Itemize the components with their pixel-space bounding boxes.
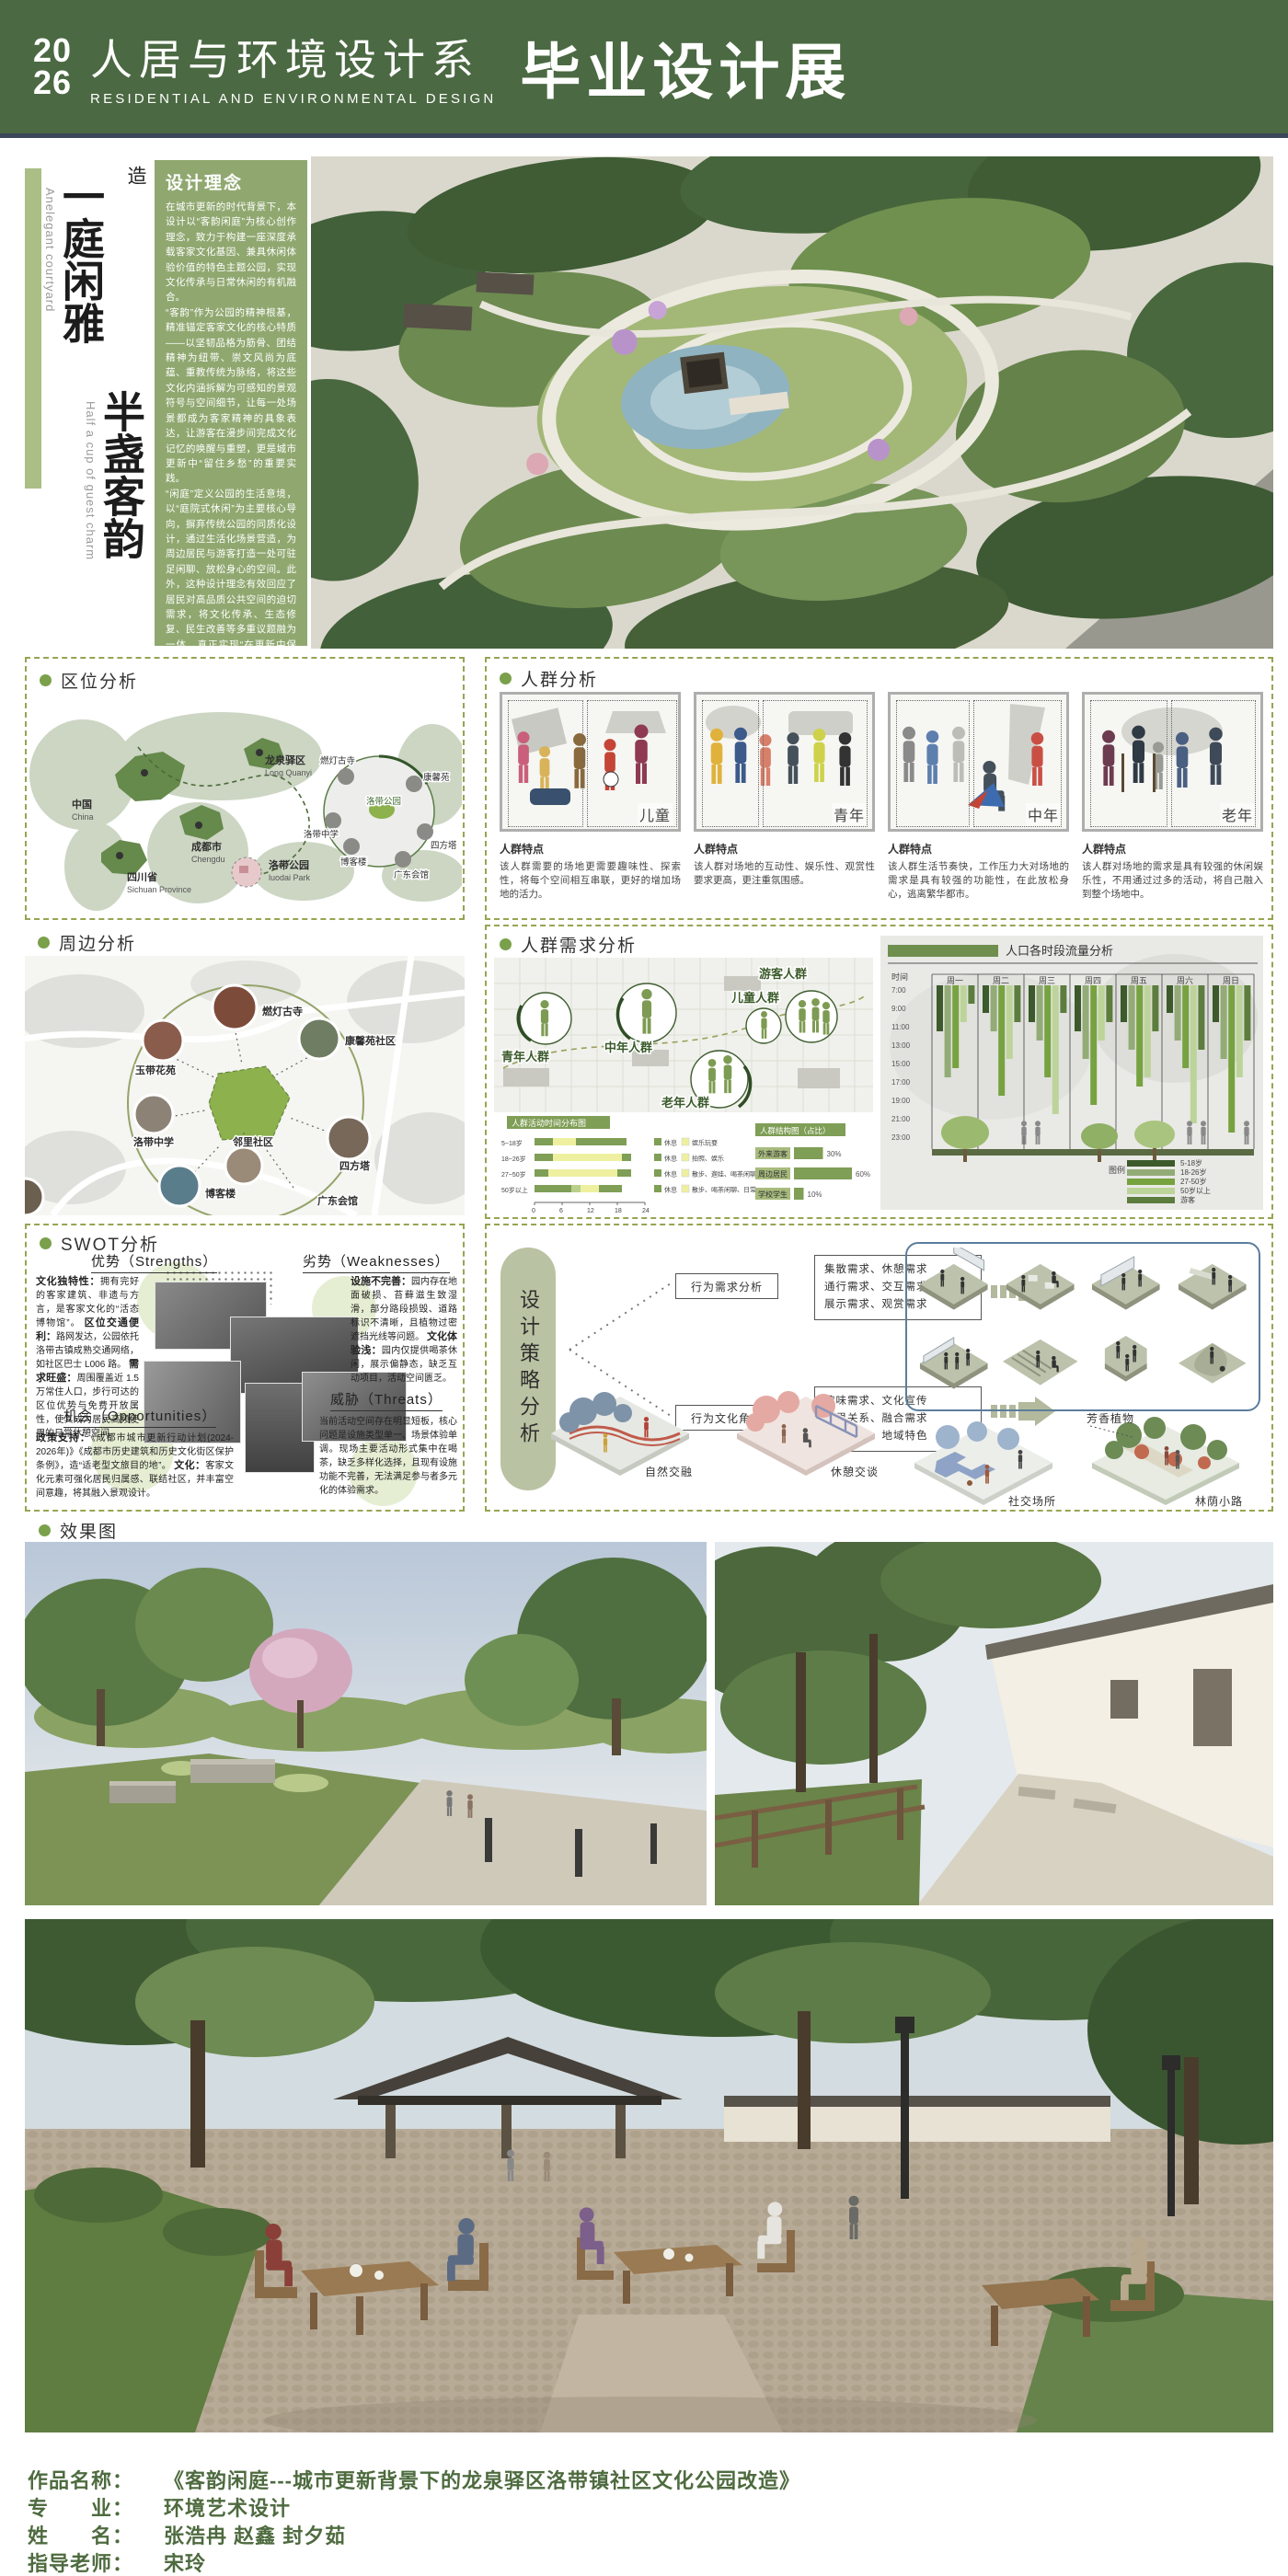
- iso-cell: [1083, 1248, 1168, 1327]
- population-flow-chart: 人口各时段流量分析时间7:009:0011:0013:0015:0017:001…: [880, 936, 1263, 1210]
- marker-china-cn: 中国: [72, 798, 92, 811]
- poi-yudai-garden: 玉带花苑: [135, 1064, 176, 1076]
- location-map: 中国 四川省 成都市 龙泉驿区 洛带公园 China Sichuan Provi…: [28, 692, 462, 918]
- inset-bokelou: 博客楼: [340, 857, 367, 868]
- trait-text: 该人群对场地的需求是具有较强的休闲娱乐性，不用通过过多的活动，将自己融入到整个场…: [1082, 860, 1263, 902]
- svg-text:周三: 周三: [1039, 976, 1055, 985]
- concept-title: 设计理念: [166, 169, 296, 194]
- concept-paragraph-2: “客韵”作为公园的精神根基，精准锚定客家文化的核心特质——以坚韧品格为筋骨、团结…: [166, 305, 296, 487]
- scene-label: 休憩交谈: [831, 1465, 879, 1478]
- svg-text:15:00: 15:00: [891, 1060, 911, 1068]
- crowd-structure-chart: 人群结构图（占比）外来游客30%周边居民60%学校学生10%: [755, 1121, 875, 1213]
- footer-key: 作品名称：: [28, 2467, 164, 2495]
- footer-row-title: 作品名称： 《客韵闲庭---城市更新背景下的龙泉驿区洛带镇社区文化公园改造》: [28, 2467, 800, 2495]
- svg-text:18: 18: [615, 1208, 622, 1214]
- trait-title: 人群特点: [500, 841, 681, 857]
- group-label-youth: 青年人群: [501, 1050, 549, 1064]
- surrounding-label: 周边分析: [59, 930, 136, 955]
- section-dot-icon: [500, 673, 512, 684]
- surrounding-header: 周边分析: [38, 930, 136, 955]
- needs-analysis-box: 人群需求分析: [485, 925, 1273, 1219]
- crowd-group-name: 青年: [832, 803, 867, 825]
- footer-value: 环境艺术设计: [164, 2495, 291, 2523]
- lead: 文化：: [174, 1460, 205, 1471]
- crowd-group-name: 儿童: [638, 803, 673, 825]
- group-label-tourists: 游客人群: [759, 967, 807, 981]
- year-top: 20: [33, 35, 72, 66]
- svg-text:人群活动时间分布图: 人群活动时间分布图: [512, 1118, 586, 1128]
- footer-key: 专 业：: [28, 2495, 164, 2523]
- title-english-2: Half a cup of guest charm: [84, 401, 98, 560]
- iso-cell: [1169, 1327, 1255, 1406]
- renders-header: 效果图: [39, 1518, 118, 1543]
- svg-text:时间: 时间: [891, 972, 908, 982]
- year-block: 20 26: [33, 35, 72, 98]
- trait-text: 该人群对场地的互动性、娱乐性、观赏性要求更高，更注重氛围感。: [694, 860, 875, 888]
- svg-text:人群结构图（占比）: 人群结构图（占比）: [760, 1126, 831, 1135]
- svg-text:休息: 休息: [664, 1186, 677, 1194]
- renders-label: 效果图: [60, 1518, 118, 1543]
- svg-text:10%: 10%: [808, 1190, 822, 1199]
- svg-text:9:00: 9:00: [891, 1005, 906, 1013]
- department-block: 人居与环境设计系 RESIDENTIAL AND ENVIRONMENTAL D…: [90, 27, 496, 107]
- iso-cell: [1169, 1248, 1255, 1327]
- opportunities-items: 政策支持：《成都市城市更新行动计划(2024-2026年)》《成都市历史建筑和历…: [36, 1432, 234, 1501]
- iso-cell: [1083, 1327, 1168, 1406]
- department-subtitle: RESIDENTIAL AND ENVIRONMENTAL DESIGN: [90, 91, 496, 107]
- title-english-1: Anelegant courtyard: [43, 188, 57, 312]
- footer-key: 姓 名：: [28, 2523, 164, 2550]
- scene-label: 自然交融: [645, 1465, 693, 1478]
- footer-row-major: 专 业： 环境艺术设计: [28, 2495, 800, 2523]
- crowd-group-name: 中年: [1026, 803, 1061, 825]
- inset-kangxinyuan: 康馨苑: [423, 772, 450, 783]
- aerial-scene: [311, 156, 1273, 649]
- concept-paragraph-1: 在城市更新的时代背景下，本设计以“客韵闲庭”为核心创作理念，致力于构建一座深度承…: [166, 200, 296, 305]
- text: 当前活动空间存在明显短板，核心问题是设施类型单一、场景体验单调。现场主要活动形式…: [319, 1417, 457, 1496]
- behaviour-diagram-grid: [905, 1242, 1260, 1411]
- render-alley-scene: [715, 1542, 1273, 1905]
- section-dot-icon: [500, 938, 512, 950]
- footer-value: 《客韵闲庭---城市更新背景下的龙泉驿区洛带镇社区文化公园改造》: [164, 2467, 800, 2495]
- svg-text:27-50岁: 27-50岁: [1180, 1177, 1206, 1186]
- crowd-panel-middleaged: 中年: [888, 692, 1069, 832]
- svg-text:6: 6: [559, 1208, 563, 1214]
- scene-shaded-path: 芳香植物 林荫小路: [1083, 1409, 1248, 1511]
- svg-text:13:00: 13:00: [891, 1041, 911, 1050]
- crowd-trait-children: 人群特点 该人群需要的场地更需要趣味性、探索性，将每个空间相互串联，更好的增加场…: [500, 841, 681, 902]
- marker-longquanyi-cn: 龙泉驿区: [264, 753, 305, 766]
- concept-paragraph-3: “闲庭”定义公园的生活意境，以“庭院式休闲”为主要核心导向，摒弃传统公园的同质化…: [166, 487, 296, 683]
- weaknesses-title: 劣势（Weaknesses）: [303, 1251, 450, 1273]
- render-tea-garden: [25, 1919, 1273, 2432]
- scene-nature: 自然交融: [542, 1380, 698, 1481]
- crowd-trait-middleaged: 人群特点 该人群生活节奏快，工作压力大对场地的需求是具有较强的功能性，在此放松身…: [888, 841, 1069, 902]
- marker-chengdu-en: Chengdu: [191, 855, 225, 864]
- surrounding-map: 燃灯古寺 玉带花苑 康馨苑社区 洛带中学 邻里社区 四方塔 博客楼 广东会馆: [25, 956, 465, 1215]
- crowd-trait-elderly: 人群特点 该人群对场地的需求是具有较强的休闲娱乐性，不用通过过多的活动，将自己融…: [1082, 841, 1263, 902]
- exhibition-title: 毕业设计展: [520, 23, 851, 111]
- marker-luodaipark-en: luodai Park: [269, 873, 311, 882]
- render-tea-garden-scene: [25, 1919, 1273, 2432]
- inset-luodai-park: 洛带公园: [366, 796, 401, 807]
- svg-text:人口各时段流量分析: 人口各时段流量分析: [1006, 944, 1113, 958]
- footer-row-advisor: 指导老师： 宋玲: [28, 2550, 800, 2576]
- marker-luodaipark-cn: 洛带公园: [269, 858, 309, 871]
- crowd-label: 人群分析: [521, 666, 598, 691]
- svg-text:60%: 60%: [856, 1170, 870, 1179]
- footer-value: 张浩冉 赵鑫 封夕茹: [164, 2523, 346, 2550]
- inset-luodai-school: 洛带中学: [304, 829, 339, 840]
- crowd-group-name: 老年: [1220, 803, 1255, 825]
- iso-cell: [911, 1327, 996, 1406]
- strategy-analysis-box: 设计策略分析 行为需求分析 集散需求、休憩需求 通行需求、交互需求 展示需求、观…: [485, 1224, 1273, 1512]
- svg-text:11:00: 11:00: [891, 1023, 910, 1031]
- strengths-title: 优势（Strengths）: [91, 1251, 217, 1273]
- svg-text:21:00: 21:00: [891, 1115, 911, 1123]
- group-label-children: 儿童人群: [730, 991, 779, 1005]
- crowd-trait-youth: 人群特点 该人群对场地的互动性、娱乐性、观赏性要求更高，更注重氛围感。: [694, 841, 875, 888]
- svg-text:游客: 游客: [1180, 1195, 1195, 1204]
- svg-text:休息: 休息: [664, 1155, 677, 1163]
- opportunities-title: 机会（Opportunities）: [63, 1406, 216, 1428]
- marker-sichuan-cn: 四川省: [127, 870, 157, 883]
- svg-text:19:00: 19:00: [891, 1097, 911, 1105]
- svg-text:5-18岁: 5-18岁: [1180, 1158, 1202, 1167]
- group-label-middleaged: 中年人群: [604, 1041, 652, 1054]
- hero-section: Anelegant courtyard 一庭闲雅 Half a cup of g…: [0, 156, 1288, 649]
- svg-text:图例: 图例: [1109, 1165, 1125, 1175]
- group-label-elderly: 老年人群: [661, 1096, 709, 1110]
- poi-randeng-temple: 燃灯古寺: [261, 1005, 303, 1018]
- footer-row-names: 姓 名： 张浩冉 赵鑫 封夕茹: [28, 2523, 800, 2550]
- activity-time-chart: 人群活动时间分布图5~18岁休息娱乐玩耍18~26岁休息拍照、娱乐27~50岁休…: [501, 1116, 759, 1215]
- svg-text:5~18岁: 5~18岁: [501, 1139, 523, 1147]
- crowd-analysis-box: 人群分析: [485, 657, 1273, 920]
- svg-text:周边居民: 周边居民: [758, 1169, 788, 1179]
- swot-analysis-box: SWOT分析 优势（Strengths） 文化独特性：拥有完好的客家建筑、非遗与…: [25, 1224, 465, 1512]
- svg-text:散步、遛娃、喝茶闲聊: 散步、遛娃、喝茶闲聊: [692, 1170, 756, 1179]
- needs-crowd-map: 青年人群 中年人群 儿童人群 游客人群 老年人群: [494, 958, 873, 1112]
- year-bottom: 26: [33, 67, 72, 98]
- poi-neighborhood-community: 邻里社区: [232, 1135, 273, 1148]
- poi-guangdong-hall: 广东会馆: [317, 1194, 358, 1207]
- svg-text:周日: 周日: [1223, 976, 1239, 985]
- svg-text:周五: 周五: [1131, 976, 1147, 985]
- svg-text:50岁以上: 50岁以上: [1180, 1186, 1211, 1195]
- svg-text:学校学生: 学校学生: [758, 1190, 788, 1199]
- main-title-part1: 一庭闲雅: [60, 175, 102, 344]
- section-dot-icon: [40, 674, 52, 686]
- crowd-panel-youth: 青年: [694, 692, 875, 832]
- scene-rest-chat: 休憩交谈: [728, 1380, 884, 1481]
- svg-text:12: 12: [587, 1208, 594, 1214]
- location-label: 区位分析: [61, 668, 138, 693]
- svg-text:23:00: 23:00: [891, 1133, 911, 1142]
- crowd-panel-children: 儿童: [500, 692, 681, 832]
- section-dot-icon: [39, 1524, 51, 1536]
- svg-text:50岁以上: 50岁以上: [501, 1186, 528, 1194]
- footer-key: 指导老师：: [28, 2550, 164, 2576]
- svg-text:7:00: 7:00: [891, 986, 906, 995]
- svg-text:散步、喝茶闲聊、日常: 散步、喝茶闲聊、日常: [692, 1186, 756, 1194]
- trait-title: 人群特点: [694, 841, 875, 857]
- svg-text:周六: 周六: [1177, 975, 1193, 985]
- svg-text:休息: 休息: [664, 1170, 677, 1179]
- marker-chengdu-cn: 成都市: [191, 840, 222, 853]
- trait-title: 人群特点: [1082, 841, 1263, 857]
- scene-annotation: 芳香植物: [1087, 1411, 1134, 1425]
- svg-text:30%: 30%: [827, 1150, 842, 1158]
- threats-title: 威胁（Threats）: [330, 1389, 443, 1411]
- lead: 文化独特性：: [36, 1276, 100, 1287]
- iso-cell: [997, 1327, 1083, 1406]
- location-analysis-box: 区位分析 中国 四川省 成都市 龙泉驿区 洛: [25, 657, 465, 920]
- marker-china-en: China: [72, 812, 94, 822]
- svg-text:17:00: 17:00: [891, 1078, 911, 1087]
- render-park-view: [25, 1542, 707, 1905]
- poi-sifang-tower: 四方塔: [339, 1159, 371, 1172]
- poi-luodai-school: 洛带中学: [133, 1135, 174, 1148]
- iso-cell: [911, 1248, 996, 1327]
- trait-text: 该人群需要的场地更需要趣味性、探索性，将每个空间相互串联，更好的增加场地的活力。: [500, 860, 681, 902]
- trait-title: 人群特点: [888, 841, 1069, 857]
- svg-text:周一: 周一: [947, 976, 963, 985]
- scene-label: 林荫小路: [1195, 1494, 1243, 1508]
- footer-value: 宋玲: [164, 2550, 206, 2576]
- svg-text:18~26岁: 18~26岁: [501, 1155, 526, 1163]
- inset-sifang-tower: 四方塔: [431, 840, 457, 851]
- svg-text:休息: 休息: [664, 1139, 677, 1147]
- surrounding-analysis-box: 周边分析: [25, 925, 465, 1219]
- svg-text:拍照、娱乐: 拍照、娱乐: [692, 1155, 724, 1163]
- section-dot-icon: [40, 1237, 52, 1249]
- iso-cell: [997, 1248, 1083, 1327]
- scene-social: 社交场所: [905, 1409, 1062, 1511]
- department-title: 人居与环境设计系: [90, 27, 496, 87]
- needs-header: 人群需求分析: [500, 932, 637, 957]
- poi-bokelou: 博客楼: [205, 1187, 236, 1200]
- header-rule: [0, 133, 1288, 138]
- svg-text:周四: 周四: [1085, 976, 1101, 985]
- crowd-header: 人群分析: [500, 666, 598, 691]
- svg-text:18-26岁: 18-26岁: [1180, 1167, 1206, 1177]
- strategy-pill-label: 设计策略分析: [513, 1289, 543, 1449]
- svg-text:27~50岁: 27~50岁: [501, 1170, 526, 1179]
- svg-text:娱乐玩耍: 娱乐玩耍: [692, 1139, 718, 1147]
- poi-kangxinyuan-community: 康馨苑社区: [345, 1034, 396, 1047]
- lead: 政策支持：: [36, 1432, 91, 1443]
- marker-longquanyi-en: Long Quanyi: [265, 768, 312, 777]
- inset-randeng-temple: 燃灯古寺: [320, 755, 356, 766]
- lead: 设施不完善：: [351, 1276, 411, 1287]
- svg-text:0: 0: [532, 1208, 535, 1214]
- section-dot-icon: [38, 937, 50, 949]
- svg-text:周二: 周二: [993, 976, 1009, 985]
- location-header: 区位分析: [40, 668, 138, 693]
- scene-label: 社交场所: [1008, 1494, 1056, 1508]
- concept-panel: 设计理念 在城市更新的时代背景下，本设计以“客韵闲庭”为核心创作理念，致力于构建…: [155, 160, 307, 646]
- needs-label: 人群需求分析: [521, 932, 637, 957]
- poster: 20 26 人居与环境设计系 RESIDENTIAL AND ENVIRONME…: [0, 0, 1288, 2576]
- render-park-scene: [25, 1542, 707, 1905]
- header-band: 20 26 人居与环境设计系 RESIDENTIAL AND ENVIRONME…: [0, 0, 1288, 133]
- render-alley-view: [715, 1542, 1273, 1905]
- svg-text:24: 24: [642, 1208, 650, 1214]
- branch1-box: 行为需求分析: [675, 1273, 778, 1299]
- weaknesses-items: 设施不完善：园内存在地面破损、苔藓滋生致湿滑，部分路段损毁、道路标识不清晰，且植…: [351, 1275, 457, 1386]
- inset-guangdong-hall: 广东会馆: [394, 869, 429, 880]
- aerial-render-image: [311, 156, 1273, 649]
- trait-text: 该人群生活节奏快，工作压力大对场地的需求是具有较强的功能性，在此放松身心，逃离繁…: [888, 860, 1069, 902]
- marker-sichuan-en: Sichuan Province: [127, 885, 191, 894]
- svg-text:外来游客: 外来游客: [758, 1149, 788, 1158]
- footer-info: 作品名称： 《客韵闲庭---城市更新背景下的龙泉驿区洛带镇社区文化公园改造》 专…: [28, 2467, 800, 2576]
- crowd-panel-elderly: 老年: [1082, 692, 1263, 832]
- threats-items: 当前活动空间存在明显短板，核心问题是设施类型单一、场景体验单调。现场主要活动形式…: [319, 1415, 457, 1498]
